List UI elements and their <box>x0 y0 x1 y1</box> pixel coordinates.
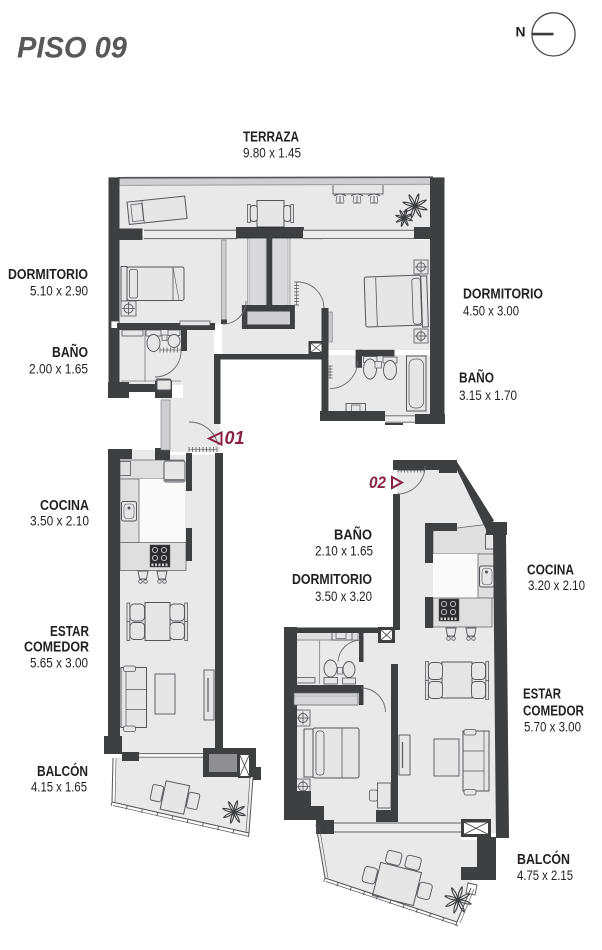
svg-text:ESTAR: ESTAR <box>523 687 561 703</box>
svg-text:2.10 x 1.65: 2.10 x 1.65 <box>315 544 373 559</box>
svg-text:BAÑO: BAÑO <box>334 526 372 544</box>
svg-text:02: 02 <box>369 473 386 492</box>
svg-text:DORMITORIO: DORMITORIO <box>8 267 88 283</box>
svg-text:COCINA: COCINA <box>527 563 574 579</box>
svg-text:5.10 x 2.90: 5.10 x 2.90 <box>30 284 88 299</box>
svg-text:3.50 x 2.10: 3.50 x 2.10 <box>30 514 89 529</box>
svg-text:DORMITORIO: DORMITORIO <box>292 572 372 588</box>
svg-text:N: N <box>516 25 526 40</box>
svg-text:PISO 09: PISO 09 <box>17 32 127 65</box>
svg-text:5.65 x 3.00: 5.65 x 3.00 <box>30 656 88 671</box>
svg-text:BALCÓN: BALCÓN <box>517 850 570 868</box>
svg-text:ESTAR: ESTAR <box>50 624 89 640</box>
svg-text:BALCÓN: BALCÓN <box>37 762 88 780</box>
svg-text:COMEDOR: COMEDOR <box>523 704 584 720</box>
svg-text:5.70 x 3.00: 5.70 x 3.00 <box>524 720 581 735</box>
svg-text:01: 01 <box>225 428 245 448</box>
svg-text:4.15 x 1.65: 4.15 x 1.65 <box>31 780 87 795</box>
svg-text:3.50 x 3.20: 3.50 x 3.20 <box>315 589 372 604</box>
svg-text:BAÑO: BAÑO <box>52 343 88 361</box>
svg-text:4.75 x 2.15: 4.75 x 2.15 <box>517 868 573 883</box>
svg-text:BAÑO: BAÑO <box>459 369 494 387</box>
svg-text:4.50 x 3.00: 4.50 x 3.00 <box>463 304 519 319</box>
svg-text:TERRAZA: TERRAZA <box>243 130 299 146</box>
svg-text:3.20 x 2.10: 3.20 x 2.10 <box>528 578 585 593</box>
svg-text:COCINA: COCINA <box>40 498 89 514</box>
svg-text:9.80 x 1.45: 9.80 x 1.45 <box>243 146 301 161</box>
svg-text:2.00 x 1.65: 2.00 x 1.65 <box>29 362 88 377</box>
svg-text:3.15 x 1.70: 3.15 x 1.70 <box>459 388 517 403</box>
svg-text:DORMITORIO: DORMITORIO <box>463 287 543 303</box>
svg-text:COMEDOR: COMEDOR <box>24 640 89 656</box>
